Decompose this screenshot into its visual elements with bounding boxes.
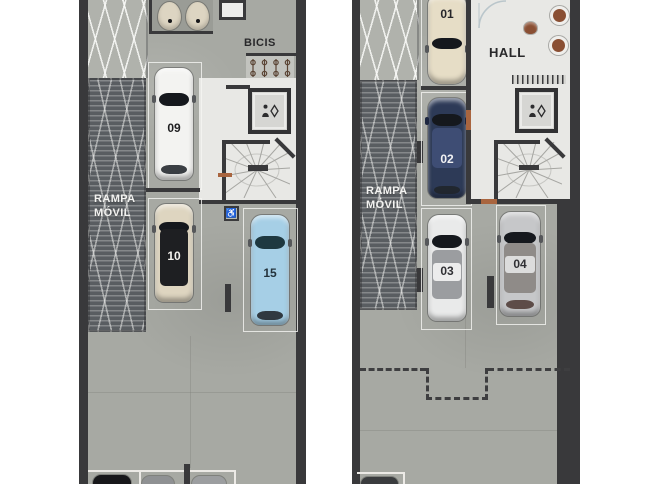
wall [421,86,470,90]
car-15: 15 [251,215,289,325]
future-spot-line [488,368,570,371]
car-mirror [192,225,196,233]
motorcycle-seat-dot [196,19,200,23]
car-windshield [432,235,462,248]
ramp-label: RAMPA MÓVIL [366,184,420,213]
car-partial [192,476,226,484]
stairs-wall [222,140,270,144]
car-number: 04 [500,257,540,271]
lounge-chair [549,36,568,55]
car-10: 10 [155,204,193,302]
door-swing-arc [478,0,512,28]
car-rear-window [161,165,187,174]
motorcycle-room [149,0,213,34]
car-windshield [432,38,462,49]
wall [199,200,296,204]
car-number: 15 [251,266,289,280]
car-01: 01 [428,0,466,84]
car-windshield [255,236,285,249]
car-03: 03 [428,215,466,321]
ramp-approach [360,0,419,80]
car-rear-window [506,300,533,308]
car-number: 03 [428,264,466,278]
car-09: 09 [155,68,193,180]
car-mirror [152,95,156,103]
car-number: 10 [155,249,193,263]
stairs-wall [494,140,498,200]
floor-joint [190,336,191,468]
lounge-table [524,22,537,34]
hall-label: HALL [489,45,539,60]
car-windshield [159,93,189,106]
car-mirror [425,117,429,125]
bike-icons [248,57,292,79]
stairs-wall [494,140,540,144]
motorcycle-icon [158,2,181,30]
spiral-stairs [496,142,562,198]
door-mark [218,173,232,177]
car-mirror [152,225,156,233]
car-windshield [432,114,462,126]
wall [226,85,250,89]
elevator-icon [527,103,547,119]
future-spot-notch [426,368,488,400]
stairs-landing-bar [519,165,539,170]
spot-divider [139,470,141,484]
car-mirror [248,239,252,247]
car-mirror [425,238,429,246]
wall-stub [184,464,190,484]
accessible-spot-marker: ♿ [224,206,239,221]
car-04: 04 [500,212,540,316]
storage-closet [219,0,246,20]
future-spot-line [360,368,426,371]
door-mark [466,110,471,130]
wheelchair-icon: ♿ [226,208,237,219]
car-number: 09 [155,121,193,135]
bikes-area-label: BICIS [244,37,296,49]
car-rear-window [434,186,460,194]
motorcycle-icon [186,2,209,30]
ramp-label: RAMPA MÓVIL [94,192,148,221]
elevator-icon [260,103,280,119]
car-mirror [497,235,501,243]
car-number: 02 [428,152,466,166]
car-mirror [288,239,292,247]
car-partial [93,475,131,484]
car-partial [142,476,174,484]
ramp-approach [88,0,148,78]
car-partial [361,477,398,484]
stairs-wall [222,140,226,202]
car-rear-window [257,311,283,320]
elevator [248,88,291,134]
wall-stub [487,276,494,308]
floor-plan-canvas: RAMPA MÓVIL BICIS [0,0,645,484]
car-mirror [192,95,196,103]
floor-joint [88,392,296,393]
motorcycle-seat-dot [168,19,172,23]
stairs-landing-bar [248,165,268,171]
hall-wall [466,0,471,203]
car-mirror [465,238,469,246]
door-mark [481,199,497,204]
wall-stub [225,284,231,312]
floor-joint [360,430,557,431]
car-number: 01 [428,7,466,21]
car-mirror [425,45,429,53]
right-thick-wall [557,203,580,484]
car-02: 02 [428,98,466,198]
wall [146,188,200,192]
elevator [515,88,558,133]
entry-mat [512,75,566,84]
car-mirror [539,235,543,243]
lounge-chair [550,6,569,25]
